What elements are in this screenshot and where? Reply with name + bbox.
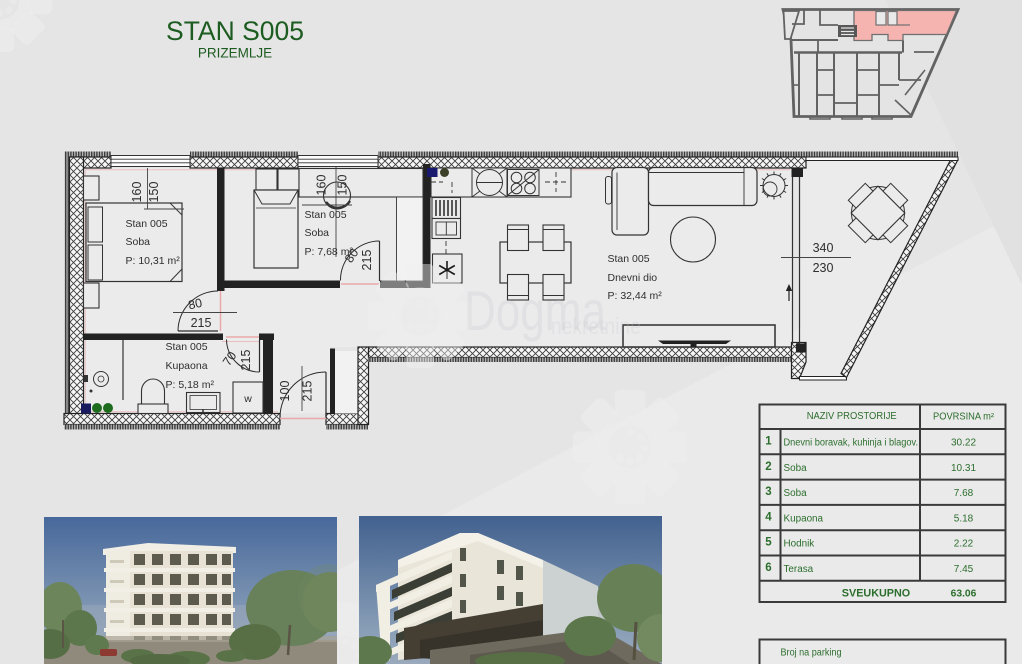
svg-text:340: 340 (813, 241, 834, 255)
svg-text:2.22: 2.22 (954, 539, 974, 550)
svg-text:150: 150 (336, 175, 350, 196)
svg-text:6: 6 (765, 562, 771, 574)
svg-text:STAN S005: STAN S005 (166, 16, 304, 46)
svg-text:215: 215 (360, 250, 374, 271)
svg-text:215: 215 (301, 381, 315, 402)
svg-text:160: 160 (130, 182, 144, 203)
svg-text:215: 215 (191, 316, 212, 330)
svg-text:Kupaona: Kupaona (166, 360, 208, 372)
svg-text:PRIZEMLJE: PRIZEMLJE (198, 46, 272, 61)
svg-text:Stan 005: Stan 005 (608, 253, 650, 265)
svg-text:P: 10,31 m²: P: 10,31 m² (126, 255, 181, 267)
svg-text:Hodnik: Hodnik (784, 539, 815, 550)
svg-text:215: 215 (239, 350, 253, 371)
svg-text:4: 4 (765, 511, 772, 523)
svg-text:1: 1 (765, 436, 772, 448)
svg-text:Broj na parking: Broj na parking (781, 648, 842, 659)
svg-text:Stan 005: Stan 005 (126, 218, 168, 230)
svg-text:7.45: 7.45 (954, 564, 974, 575)
svg-text:3: 3 (765, 486, 771, 498)
svg-text:Soba: Soba (305, 227, 330, 239)
svg-text:2: 2 (765, 461, 771, 473)
svg-text:5.18: 5.18 (954, 513, 974, 524)
svg-text:nekretnine: nekretnine (551, 313, 641, 339)
svg-text:NAZIV PROSTORIJE: NAZIV PROSTORIJE (807, 411, 898, 422)
svg-text:Stan 005: Stan 005 (305, 209, 347, 221)
svg-text:Terasa: Terasa (784, 564, 814, 575)
svg-text:w: w (243, 393, 252, 405)
svg-text:Soba: Soba (784, 488, 808, 499)
svg-text:Soba: Soba (784, 463, 808, 474)
svg-text:150: 150 (147, 182, 161, 203)
svg-text:80: 80 (187, 296, 204, 313)
svg-text:Soba: Soba (126, 236, 151, 248)
svg-text:100: 100 (278, 381, 292, 402)
svg-text:Kupaona: Kupaona (784, 513, 824, 524)
svg-text:Stan 005: Stan 005 (166, 341, 208, 353)
svg-text:5: 5 (765, 537, 772, 549)
svg-text:160: 160 (315, 175, 329, 196)
svg-text:P: 5,18 m²: P: 5,18 m² (166, 379, 215, 391)
svg-text:POVRSINA m²: POVRSINA m² (933, 412, 995, 423)
svg-text:Dnevni dio: Dnevni dio (608, 272, 658, 284)
svg-text:P: 32,44 m²: P: 32,44 m² (608, 290, 663, 302)
svg-text:10.31: 10.31 (951, 463, 976, 474)
svg-text:Dnevni boravak, kuhinja i blag: Dnevni boravak, kuhinja i blagov. (784, 438, 919, 449)
svg-text:7.68: 7.68 (954, 488, 974, 499)
svg-text:63.06: 63.06 (951, 589, 977, 600)
svg-text:30.22: 30.22 (951, 438, 976, 449)
svg-text:230: 230 (813, 261, 834, 275)
svg-text:SVEUKUPNO: SVEUKUPNO (842, 588, 910, 600)
